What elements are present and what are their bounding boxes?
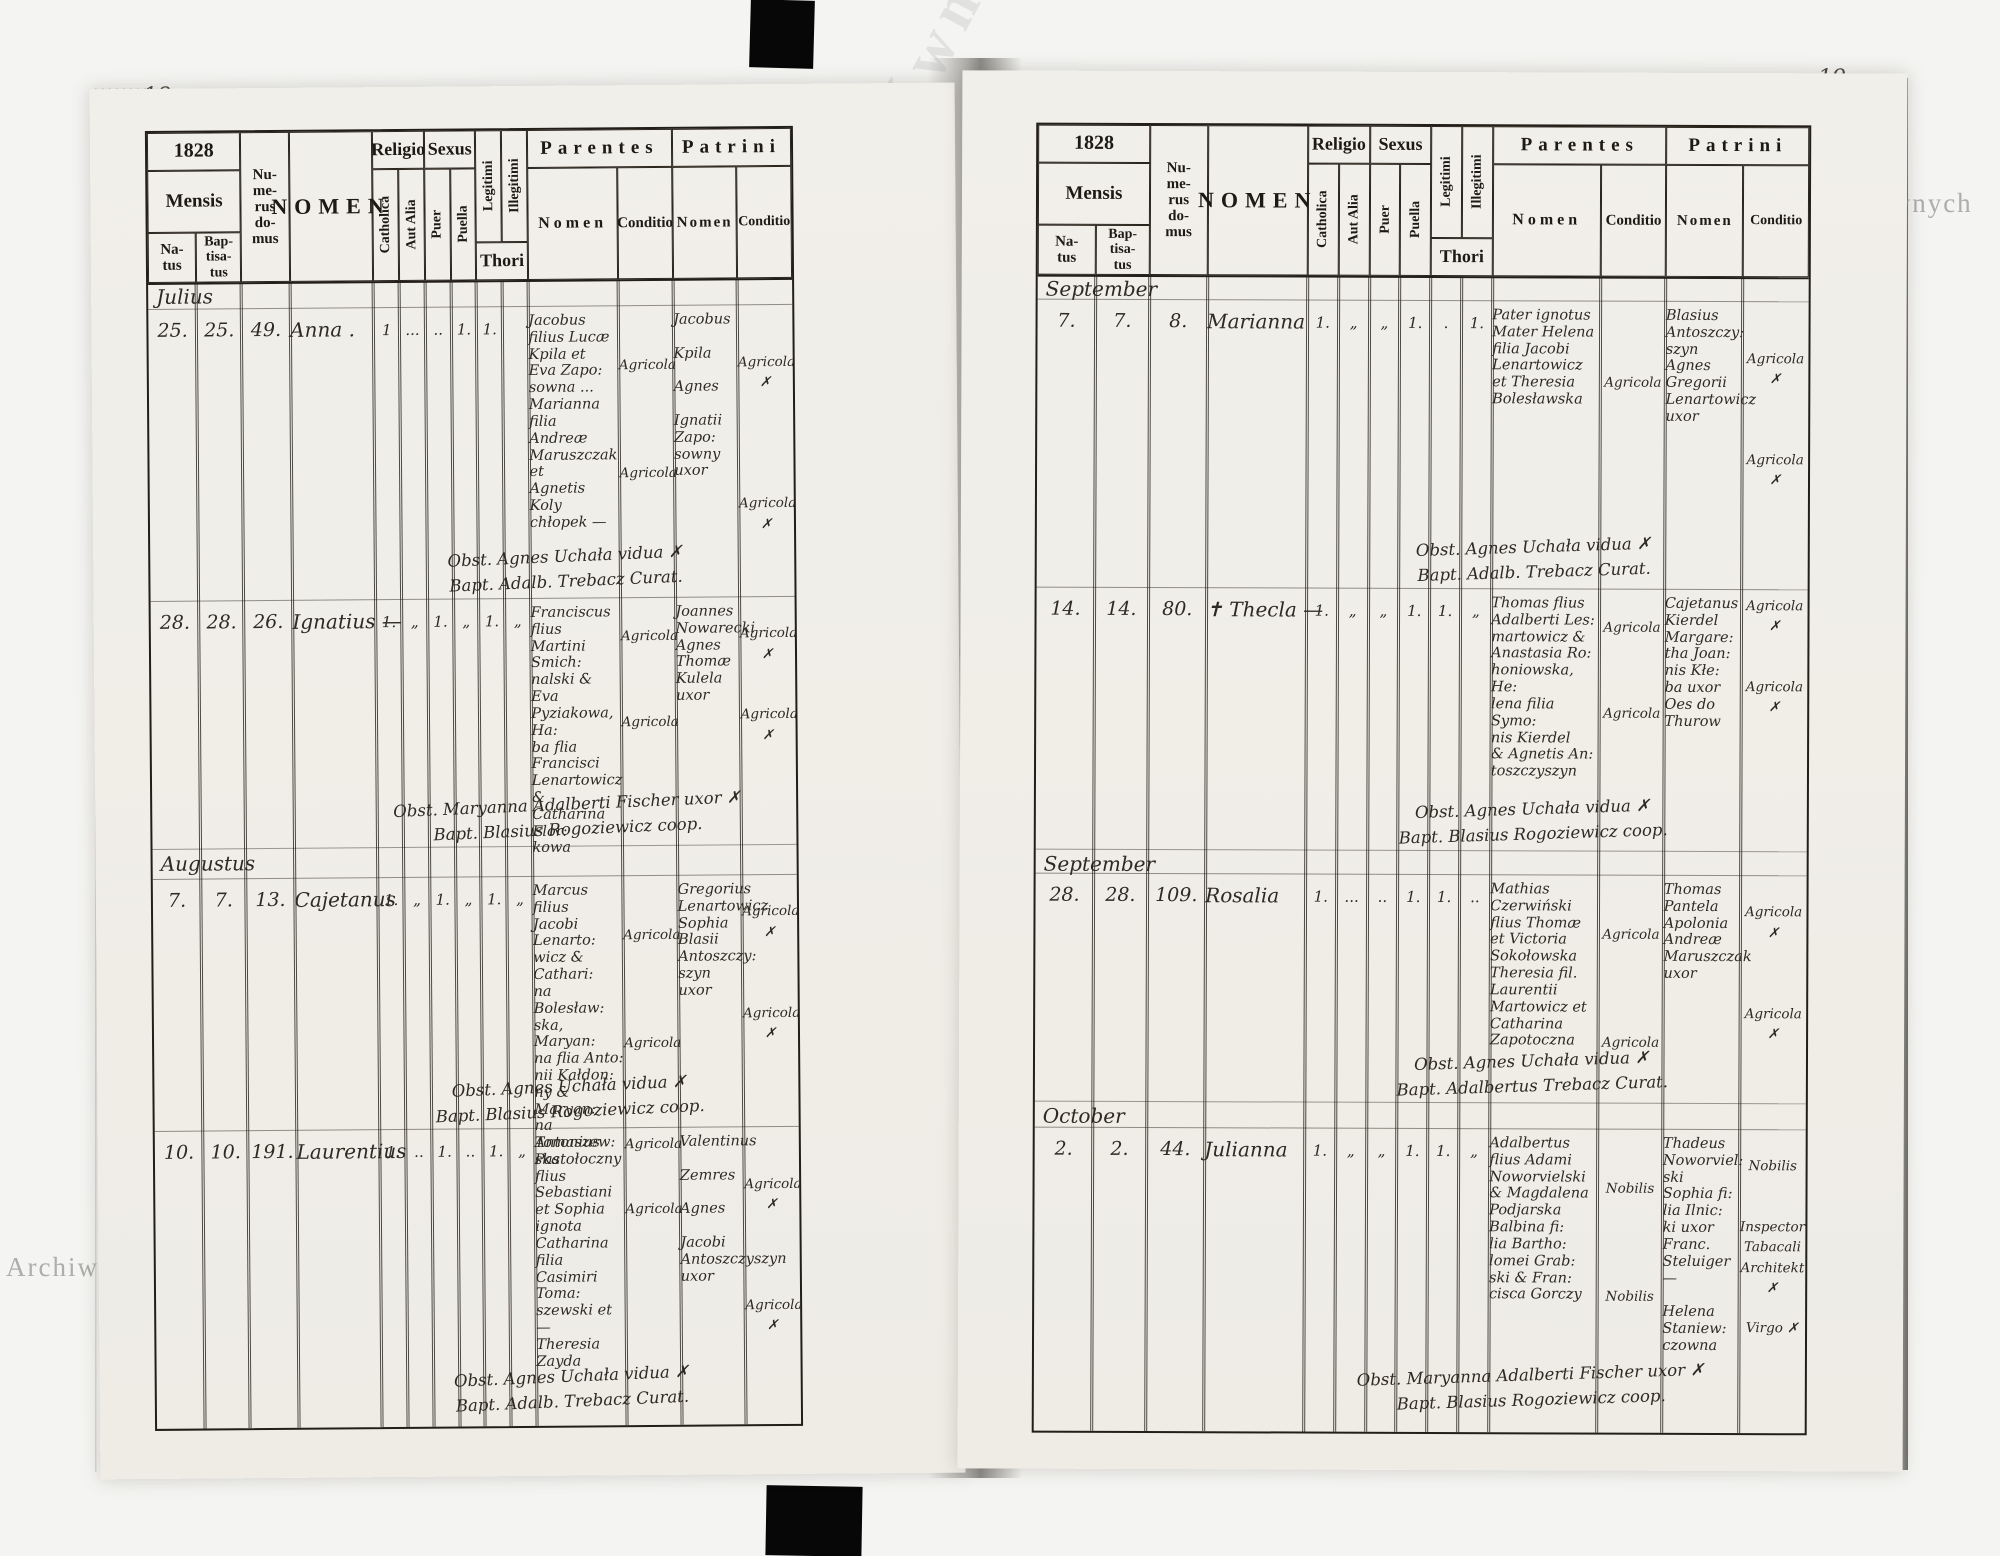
baptisatus-value: 7.	[201, 879, 248, 1171]
month-label: September	[1036, 849, 1807, 876]
legitimi-header: Legitimi	[475, 130, 502, 242]
domus-value: 109.	[1147, 874, 1206, 1101]
domus-value: 13.	[246, 879, 297, 1171]
puella-header: Puella	[1400, 164, 1431, 276]
month-label: September	[1038, 275, 1809, 302]
baptism-entry: 28. 28. 109. Rosalia 1. ... .. 1. 1. .. …	[1035, 873, 1807, 1104]
natus-value: 2.	[1034, 1128, 1093, 1415]
baptisatus-value: 14.	[1094, 588, 1149, 849]
sexus-header: Sexus	[424, 130, 476, 168]
mensis-header: Mensis	[1038, 163, 1150, 225]
table-body-left: Julius 25. 25. 49. Anna . 1 ... .. 1. 1.…	[148, 278, 801, 1429]
natus-value: 28.	[151, 602, 201, 861]
domus-value: 26.	[244, 601, 294, 860]
religio-header: Religio	[372, 131, 424, 169]
year-header: 1828	[147, 132, 241, 171]
parentes-nomen-header: Nomen	[527, 167, 618, 280]
domus-value: 8.	[1148, 300, 1207, 587]
illegitimi-header: Illegitimi	[501, 130, 528, 242]
baptisatus-value: 28.	[1093, 874, 1148, 1101]
register-table-right: 1828 Mensis Na- tus Bap- tisa- tus Nu- m…	[1032, 123, 1812, 1436]
nomen-header: NOMEN	[289, 131, 374, 282]
baptism-entry: 14. 14. 80. ✝ Thecla — 1. „ „ 1. 1. „ Th…	[1036, 587, 1808, 852]
register-page-right: 1828 Mensis Na- tus Bap- tisa- tus Nu- m…	[958, 70, 1908, 1471]
religio-header: Religio	[1308, 126, 1370, 164]
baptisatus-header: Bap- tisa- tus	[1096, 225, 1150, 275]
nomen-header: NOMEN	[1207, 125, 1308, 275]
catholica-header: Catholica	[373, 169, 400, 281]
baptisatus-value: 10.	[203, 1131, 250, 1420]
table-body-right: September 7. 7. 8. Marianna 1. „ „ 1. . …	[1034, 275, 1809, 1434]
patrini-header: Patrini	[1666, 127, 1809, 165]
month-label: October	[1035, 1101, 1806, 1130]
baptisatus-header: Bap- tisa- tus	[196, 232, 241, 282]
patrini-nomen-header: Nomen	[1666, 165, 1743, 277]
year-header: 1828	[1038, 125, 1150, 163]
baptism-entry: 10. 10. 191. Laurentius 1. .. 1. .. 1. „…	[155, 1126, 801, 1421]
mensis-header: Mensis	[147, 170, 241, 233]
baptisatus-value: 28.	[199, 601, 246, 860]
binding-strap-top	[749, 0, 815, 69]
natus-value: 14.	[1036, 588, 1095, 849]
register-table-left: 1828 Mensis Na- tus Bap- tisa- tus Nu- m…	[145, 126, 803, 1431]
baptism-entry: 25. 25. 49. Anna . 1 ... .. 1. 1. Jacobu…	[148, 304, 794, 601]
parentes-conditio: Agricola Agricola	[623, 876, 680, 1168]
natus-value: 28.	[1035, 874, 1094, 1101]
sexus-header: Sexus	[1370, 126, 1432, 164]
aut-alia-header: Aut Alia	[398, 169, 425, 281]
natus-value: 7.	[153, 880, 204, 1172]
binding-strap-bottom	[765, 1485, 862, 1556]
parentes-header: Parentes	[1493, 126, 1667, 165]
baptisatus-value: 2.	[1092, 1128, 1147, 1415]
natus-header: Na- tus	[1038, 225, 1096, 275]
patrini-conditio-header: Conditio	[1743, 165, 1809, 277]
parentes-nomen-header: Nomen	[1493, 164, 1601, 276]
natus-header: Na- tus	[148, 233, 197, 283]
scanned-register-spread: Archiwum Główne Akt Dawnych Archiwum Głó…	[0, 0, 2000, 1556]
puella-header: Puella	[450, 168, 477, 280]
thori-header: Thori	[476, 242, 528, 280]
thori-header: Thori	[1431, 238, 1493, 276]
natus-value: 25.	[148, 310, 199, 601]
patrini-nomen: Gregorius Lenartowicz Sophia Blasii Anto…	[678, 875, 745, 1167]
patrini-conditio-header: Conditio	[736, 166, 792, 278]
parentes-conditio-header: Conditio	[1601, 165, 1667, 277]
puer-header: Puer	[424, 169, 451, 281]
table-header-right: 1828 Mensis Na- tus Bap- tisa- tus Nu- m…	[1038, 125, 1810, 280]
domus-value: 191.	[248, 1131, 299, 1420]
patrini-nomen-header: Nomen	[672, 166, 737, 279]
domus-value: 44.	[1146, 1128, 1205, 1415]
domus-value: 80.	[1148, 588, 1207, 849]
baptism-entry: 7. 7. 13. Cajetanus 1. „ 1. „ 1. „ Marcu…	[153, 874, 799, 1131]
domus-value: 49.	[242, 309, 293, 600]
parentes-conditio-header: Conditio	[617, 167, 673, 279]
table-header-left: 1828 Mensis Na- tus Bap- tisa- tus Nu- m…	[147, 128, 792, 285]
illegitimi-header: Illegitimi	[1462, 126, 1493, 238]
natus-value: 10.	[155, 1132, 206, 1421]
baptism-entry: 2. 2. 44. Julianna 1. „ „ 1. 1. „ Adalbe…	[1034, 1127, 1806, 1418]
puer-header: Puer	[1369, 164, 1400, 276]
baptism-entry: 28. 28. 26. Ignatius — 1. „ 1. „ 1. „ Fr…	[151, 596, 797, 849]
natus-value: 7.	[1037, 300, 1096, 587]
baptism-entry: 7. 7. 8. Marianna 1. „ „ 1. . 1. Pater i…	[1037, 299, 1809, 590]
patrini-conditio: Agricola ✗ Agricola ✗	[742, 875, 799, 1167]
baptisatus-value: 7.	[1094, 300, 1149, 587]
aut-alia-header: Aut Alia	[1338, 164, 1369, 276]
register-page-left: 1828 Mensis Na- tus Bap- tisa- tus Nu- m…	[90, 83, 966, 1480]
baptisatus-value: 25.	[197, 309, 244, 600]
patrini-header: Patrini	[672, 128, 791, 167]
parentes-header: Parentes	[527, 129, 672, 168]
catholica-header: Catholica	[1308, 164, 1339, 276]
legitimi-header: Legitimi	[1431, 126, 1462, 238]
